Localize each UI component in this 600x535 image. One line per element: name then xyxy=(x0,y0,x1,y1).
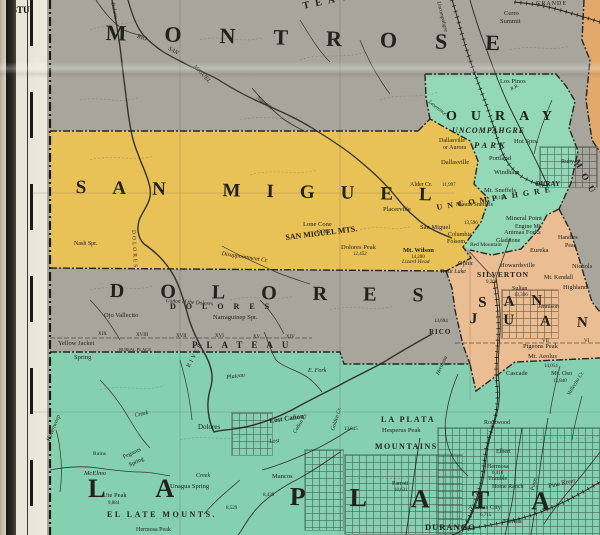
map-label: Red Mountain xyxy=(470,243,502,249)
map-label: VI xyxy=(584,339,589,344)
map-label: Animas City xyxy=(468,505,501,512)
map-label: Narraguinep Spr. xyxy=(213,315,257,322)
map-labels: MONTROSESAN MIGUELDOLORESOURAYUNCOMPAHGR… xyxy=(0,0,600,535)
map-label: Peak xyxy=(565,243,577,249)
map-label: PLATEAU xyxy=(192,341,297,350)
map-label: XVI xyxy=(215,334,224,339)
map-label: Columbia xyxy=(448,232,472,238)
map-label: Dolores xyxy=(198,424,220,431)
map-label: Animas Forks xyxy=(504,230,541,237)
map-label: Nash Spr. xyxy=(74,241,97,247)
map-label: Hermosa xyxy=(487,464,509,470)
map-label: XIX xyxy=(98,332,107,337)
map-label: Windham xyxy=(494,170,519,177)
map-label: Home Ranch xyxy=(492,484,524,490)
map-label: Spring xyxy=(128,456,145,468)
map-label: 8,529 xyxy=(226,506,237,511)
map-label: DURANGO xyxy=(425,523,476,532)
map-label: Creek xyxy=(134,410,149,419)
map-label: Mt. Wilson xyxy=(403,248,434,255)
map-label: PARK xyxy=(474,141,508,150)
map-label: MOUNTAINS xyxy=(375,443,438,451)
map-label: BURIAL PLACE xyxy=(119,348,151,353)
map-label: Hovenweep xyxy=(46,414,62,442)
map-label: XV xyxy=(253,335,260,340)
map-label: Ute Peak xyxy=(103,493,127,500)
map-label: Unagua Spring xyxy=(170,484,209,491)
map-label: San Miguel xyxy=(420,225,450,232)
map-canvas: MONTROSESAN MIGUELDOLORESOURAYUNCOMPAHGR… xyxy=(0,0,600,535)
map-label: Mineral Point xyxy=(506,216,542,223)
map-label: Pigeons Peak xyxy=(523,344,558,351)
map-label: JUAN xyxy=(469,312,600,332)
map-label: 13,840 xyxy=(553,379,567,384)
map-label: Lone Cone xyxy=(303,222,332,229)
map-label: Mt. Oso xyxy=(551,371,572,378)
map-label: OURAY xyxy=(446,110,566,124)
map-label: Lawrence xyxy=(427,100,447,118)
map-label: Dolores xyxy=(109,2,118,20)
map-label: UNCOMPAHGRE xyxy=(452,127,525,135)
map-label: Alder Cr. xyxy=(410,182,432,188)
map-label: VII xyxy=(542,339,549,344)
map-label: 6,715 xyxy=(480,513,491,518)
map-label: Jennison xyxy=(538,304,559,310)
map-label: XVII xyxy=(176,334,187,339)
map-label: SILVERTON xyxy=(477,271,529,279)
map-label: Dallasville xyxy=(439,138,465,144)
map-label: Handies xyxy=(558,235,578,241)
map-label: EL LATE MOUNTS. xyxy=(107,511,217,519)
map-label: Hesperus Peak xyxy=(382,428,420,435)
map-label: DOLORES xyxy=(110,281,460,306)
map-label: Plateau xyxy=(226,372,245,381)
map-label: LA PLATA xyxy=(381,416,436,424)
map-label: Spring xyxy=(74,355,91,362)
map-label: MIGUEL xyxy=(192,64,212,84)
map-label: Hermosa xyxy=(436,356,450,377)
map-label: Cascade xyxy=(506,371,528,378)
map-label: Florida xyxy=(503,519,522,526)
map-label: RICO xyxy=(429,329,451,336)
map-label: SAN xyxy=(167,46,179,57)
map-label: Mt. Sneffels xyxy=(484,188,516,195)
map-label: 10,631 xyxy=(394,488,408,493)
map-label: Folsom xyxy=(447,239,465,245)
map-label: Naturita xyxy=(255,96,273,111)
map-label: Dallasville xyxy=(441,160,469,167)
map-label: MOU xyxy=(572,158,600,200)
map-label: Hot Sprs. xyxy=(514,139,539,146)
map-label: Yellow Jacket xyxy=(58,341,94,348)
map-label: Elbert xyxy=(496,449,511,455)
map-label: GRANDE xyxy=(536,1,567,7)
map-label: DOLORES xyxy=(130,230,138,270)
map-label: Portland xyxy=(489,156,511,163)
map-label: Lost xyxy=(269,438,280,445)
map-label: 12,452 xyxy=(353,252,367,257)
map-label: Eureka xyxy=(530,248,548,255)
map-label: Howardsville xyxy=(500,263,535,270)
map-label: Golden Cr. xyxy=(331,407,344,432)
map-label: Trimble xyxy=(488,476,507,482)
map-label: 13,694 xyxy=(434,319,448,324)
map-label: Parrott xyxy=(392,481,408,487)
map-label: Los Pinos xyxy=(500,79,526,86)
map-label: Ruins xyxy=(93,452,106,458)
map-label: Mt. Aeolus xyxy=(528,354,557,361)
map-label: 13,596 xyxy=(464,221,478,226)
map-label: 13,045 xyxy=(344,427,358,432)
map-label: 14,158 xyxy=(492,196,506,201)
map-label: 13,336 xyxy=(514,293,528,298)
map-label: or Aurora xyxy=(443,145,466,151)
map-label: Trout Lake xyxy=(440,269,466,275)
map-label: Cerro xyxy=(504,11,519,18)
map-label: 8,439 xyxy=(263,493,274,498)
map-label: Disappointment Cr. xyxy=(221,251,268,264)
map-label: 11,997 xyxy=(442,183,456,188)
map-label: Highland xyxy=(563,285,587,292)
map-label: Mancos xyxy=(272,474,293,481)
map-label: XIV xyxy=(286,335,295,340)
map-label: 12,761 xyxy=(316,230,330,235)
map-label: Ophir xyxy=(458,261,473,268)
map-label: Rockwood xyxy=(484,420,510,426)
map-label: 9,884 xyxy=(108,501,119,506)
map-label: Lizard Head xyxy=(402,260,429,266)
map-label: Mt. Kendall xyxy=(544,275,573,281)
map-label: Ojo Vallecito xyxy=(104,313,138,320)
map-label: Ruby xyxy=(561,159,574,165)
map-label: Summit xyxy=(500,19,521,26)
map-label: TEAU xyxy=(302,0,355,12)
map-label: SAN MIGUEL xyxy=(76,178,458,205)
map-label: XVIII xyxy=(136,333,148,338)
map-label: Nichols xyxy=(572,264,592,271)
map-label: Sultan xyxy=(512,286,527,292)
map-label: E. Fork xyxy=(308,368,326,374)
map-label: 9,200 xyxy=(486,280,497,285)
map-label: Hermosa Peak xyxy=(136,527,171,533)
map-label: Dolores Peak xyxy=(341,245,376,252)
map-label: 14,054 xyxy=(544,364,558,369)
map-label: Mount Sneffels xyxy=(456,202,493,208)
map-label: OURAY xyxy=(535,181,560,188)
map-label: Creek xyxy=(196,473,210,479)
map-label: McElmo xyxy=(84,471,106,478)
map-label: Placerville xyxy=(383,207,411,214)
